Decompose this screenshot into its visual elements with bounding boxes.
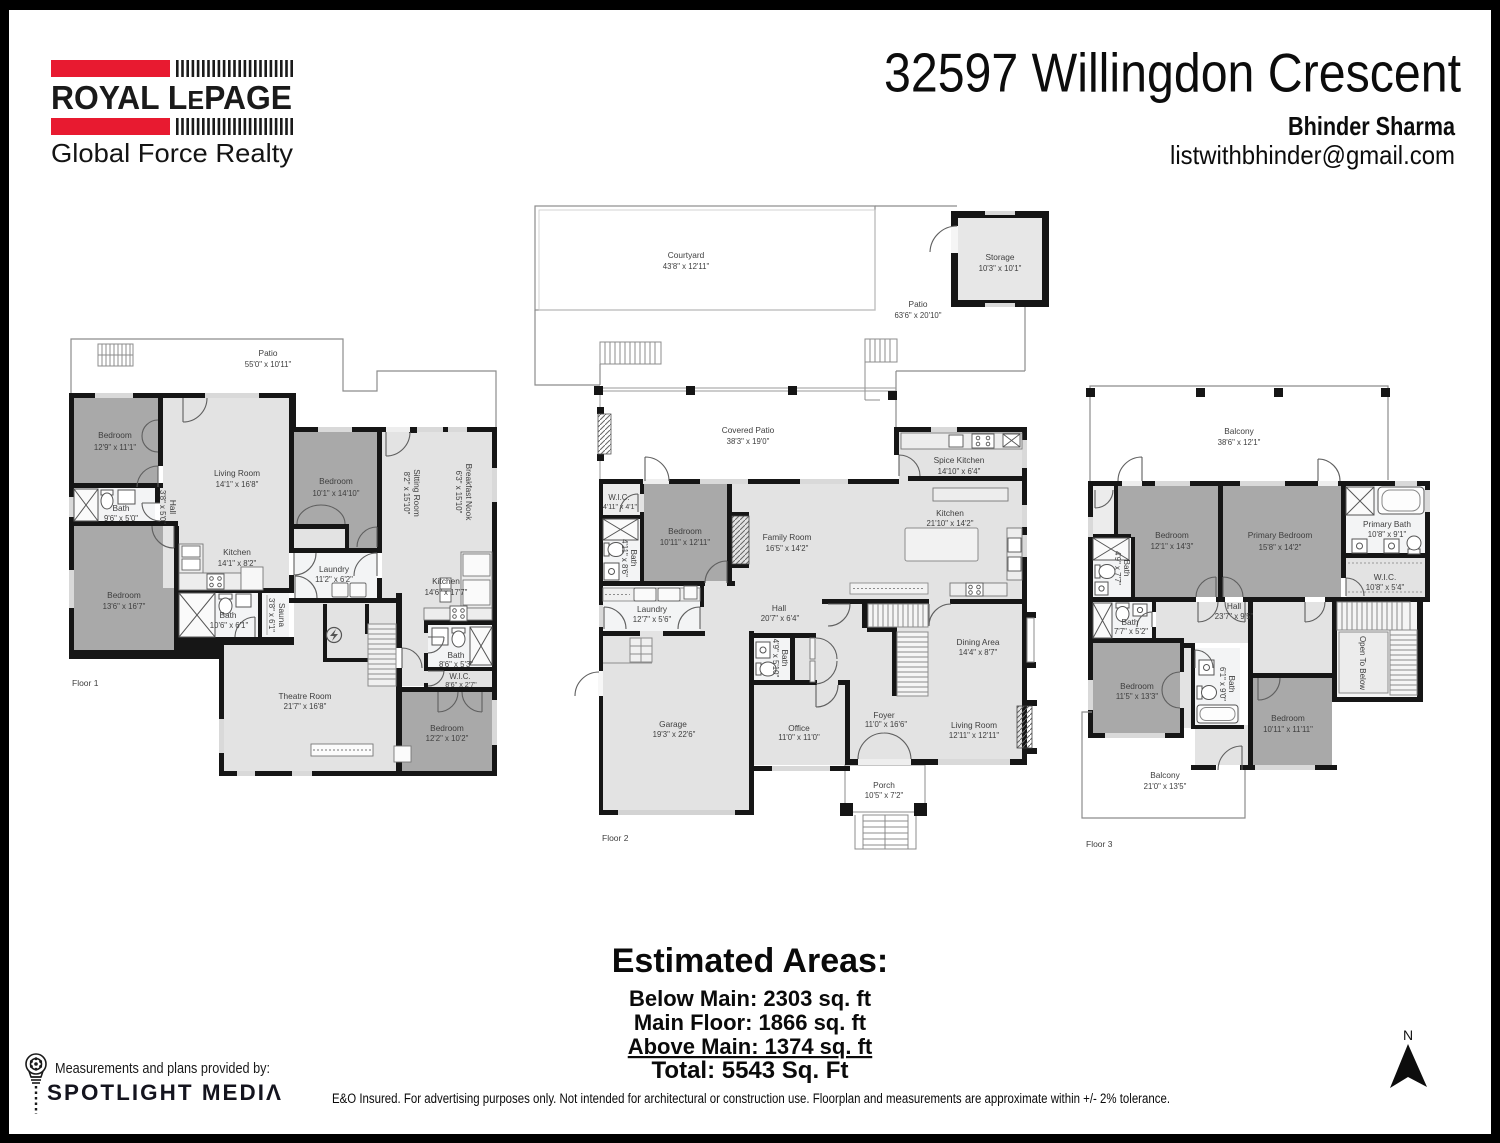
- svg-text:Floor 2: Floor 2: [602, 833, 629, 843]
- svg-text:Bath: Bath: [1122, 559, 1132, 576]
- svg-text:6'1" x 9'0": 6'1" x 9'0": [1218, 667, 1227, 701]
- svg-text:Bath: Bath: [447, 650, 464, 660]
- svg-text:E&O Insured. For advertising p: E&O Insured. For advertising purposes on…: [332, 1091, 1170, 1106]
- svg-text:8'2" x 15'10": 8'2" x 15'10": [402, 472, 411, 515]
- svg-text:Bath: Bath: [629, 549, 639, 566]
- svg-text:Laundry: Laundry: [637, 604, 668, 614]
- svg-text:10'11" x 12'11": 10'11" x 12'11": [660, 538, 711, 547]
- svg-text:11'0" x 11'0": 11'0" x 11'0": [778, 733, 820, 742]
- svg-text:Kitchen: Kitchen: [936, 508, 964, 518]
- svg-text:Floor 3: Floor 3: [1086, 839, 1113, 849]
- svg-text:10'1" x 14'10": 10'1" x 14'10": [312, 489, 359, 498]
- svg-text:Floor 1: Floor 1: [72, 678, 99, 688]
- svg-text:15'8" x 14'2": 15'8" x 14'2": [1259, 543, 1302, 552]
- svg-text:Spice Kitchen: Spice Kitchen: [934, 455, 985, 465]
- svg-text:10'3" x 10'1": 10'3" x 10'1": [979, 264, 1022, 273]
- svg-text:Sitting Room: Sitting Room: [412, 469, 422, 517]
- svg-text:Below Main: 2303 sq. ft: Below Main: 2303 sq. ft: [629, 986, 872, 1011]
- svg-text:Bath: Bath: [112, 503, 129, 513]
- svg-text:21'7" x 16'8": 21'7" x 16'8": [284, 702, 327, 711]
- svg-text:14'1" x 16'8": 14'1" x 16'8": [216, 480, 259, 489]
- svg-text:Patio: Patio: [909, 299, 928, 309]
- svg-text:12'11" x 12'11": 12'11" x 12'11": [949, 731, 1000, 740]
- svg-text:Bedroom: Bedroom: [319, 476, 353, 486]
- svg-text:14'6" x 17'7": 14'6" x 17'7": [425, 588, 468, 597]
- svg-text:Courtyard: Courtyard: [668, 250, 705, 260]
- svg-text:Total: 5543 Sq. Ft: Total: 5543 Sq. Ft: [652, 1057, 849, 1084]
- svg-text:Bath: Bath: [219, 610, 236, 620]
- svg-text:Hall: Hall: [1227, 601, 1241, 611]
- svg-text:Bedroom: Bedroom: [1155, 530, 1189, 540]
- svg-text:Bath: Bath: [780, 649, 790, 666]
- svg-text:12'2" x 10'2": 12'2" x 10'2": [426, 734, 469, 743]
- svg-text:12'1" x 14'3": 12'1" x 14'3": [1151, 542, 1194, 551]
- svg-text:Porch: Porch: [873, 780, 895, 790]
- svg-text:Bedroom: Bedroom: [1120, 681, 1154, 691]
- svg-text:10'5" x 7'2": 10'5" x 7'2": [865, 791, 904, 800]
- svg-text:N: N: [1403, 1027, 1413, 1043]
- svg-text:Storage: Storage: [985, 252, 1014, 262]
- svg-text:10'8" x 9'1": 10'8" x 9'1": [1368, 530, 1407, 539]
- svg-text:Covered Patio: Covered Patio: [722, 425, 775, 435]
- svg-text:11'5" x 13'3": 11'5" x 13'3": [1116, 692, 1158, 701]
- svg-text:9'6" x 5'0": 9'6" x 5'0": [104, 514, 138, 523]
- svg-text:Bath: Bath: [1121, 617, 1138, 627]
- svg-text:8'6" x 5'3": 8'6" x 5'3": [439, 660, 473, 669]
- svg-text:21'0" x 13'5": 21'0" x 13'5": [1144, 782, 1187, 791]
- svg-text:Estimated Areas:: Estimated Areas:: [612, 942, 889, 980]
- svg-text:14'10" x 6'4": 14'10" x 6'4": [938, 467, 981, 476]
- svg-text:Living Room: Living Room: [951, 720, 997, 730]
- svg-text:20'7" x 6'4": 20'7" x 6'4": [761, 614, 800, 623]
- svg-text:14'1" x 8'2": 14'1" x 8'2": [218, 559, 257, 568]
- svg-text:13'6" x 16'7": 13'6" x 16'7": [103, 602, 146, 611]
- svg-text:Above Main: 1374 sq. ft: Above Main: 1374 sq. ft: [628, 1034, 873, 1059]
- svg-text:Global Force Realty: Global Force Realty: [51, 138, 293, 168]
- svg-text:Bath: Bath: [1227, 675, 1237, 692]
- svg-text:Primary Bedroom: Primary Bedroom: [1248, 530, 1313, 540]
- svg-text:Breakfast Nook: Breakfast Nook: [464, 464, 474, 522]
- svg-text:23'7" x 9'5": 23'7" x 9'5": [1215, 612, 1254, 621]
- svg-text:11'2" x 6'2": 11'2" x 6'2": [315, 575, 353, 584]
- svg-text:Bedroom: Bedroom: [98, 430, 132, 440]
- svg-text:Bedroom: Bedroom: [1271, 713, 1305, 723]
- svg-text:Bhinder Sharma: Bhinder Sharma: [1288, 111, 1455, 141]
- svg-text:Office: Office: [788, 723, 810, 733]
- svg-text:43'8" x 12'11": 43'8" x 12'11": [663, 262, 710, 271]
- svg-text:Dining Area: Dining Area: [957, 637, 1000, 647]
- svg-text:12'7" x 5'6": 12'7" x 5'6": [633, 615, 672, 624]
- svg-text:7'7" x 5'2": 7'7" x 5'2": [1114, 627, 1148, 636]
- svg-text:Measurements and plans provide: Measurements and plans provided by:: [55, 1060, 270, 1077]
- svg-text:3'8" x 6'1": 3'8" x 6'1": [267, 598, 276, 632]
- svg-text:ROYAL LEPAGE: ROYAL LEPAGE: [51, 79, 292, 116]
- svg-text:Kitchen: Kitchen: [223, 547, 251, 557]
- svg-text:Bedroom: Bedroom: [430, 723, 464, 733]
- svg-text:10'6" x 6'1": 10'6" x 6'1": [210, 621, 249, 630]
- svg-text:Balcony: Balcony: [1224, 426, 1254, 436]
- svg-text:63'6" x 20'10": 63'6" x 20'10": [894, 311, 941, 320]
- svg-text:6'3" x 15'10": 6'3" x 15'10": [454, 471, 463, 514]
- svg-text:10'11" x 11'11": 10'11" x 11'11": [1263, 725, 1313, 734]
- svg-text:W.I.C.: W.I.C.: [1374, 572, 1397, 582]
- svg-text:11'0" x 16'6": 11'0" x 16'6": [865, 720, 907, 729]
- svg-text:21'10" x 14'2": 21'10" x 14'2": [926, 519, 973, 528]
- svg-text:Garage: Garage: [659, 719, 687, 729]
- svg-text:4'9" x 7'7": 4'9" x 7'7": [1113, 551, 1122, 585]
- svg-text:Family Room: Family Room: [763, 532, 812, 542]
- svg-text:55'0" x 10'11": 55'0" x 10'11": [245, 360, 292, 369]
- svg-text:12'9" x 11'1": 12'9" x 11'1": [94, 443, 136, 452]
- svg-text:Theatre Room: Theatre Room: [278, 691, 331, 701]
- svg-text:Hall: Hall: [772, 603, 786, 613]
- svg-text:Balcony: Balcony: [1150, 770, 1180, 780]
- svg-text:Foyer: Foyer: [873, 710, 894, 720]
- svg-text:listwithbhinder@gmail.com: listwithbhinder@gmail.com: [1170, 140, 1455, 170]
- svg-text:Bedroom: Bedroom: [107, 590, 141, 600]
- svg-text:Open To Below: Open To Below: [1358, 636, 1367, 690]
- svg-text:Living Room: Living Room: [214, 468, 260, 478]
- svg-text:Primary Bath: Primary Bath: [1363, 519, 1411, 529]
- svg-text:3'8" x 5'0": 3'8" x 5'0": [158, 490, 167, 524]
- svg-text:32597 Willingdon Crescent: 32597 Willingdon Crescent: [884, 42, 1461, 104]
- svg-text:SPOTLIGHT MEDIΛ: SPOTLIGHT MEDIΛ: [47, 1080, 283, 1105]
- svg-text:10'8" x 5'4": 10'8" x 5'4": [1366, 583, 1405, 592]
- svg-text:Kitchen: Kitchen: [432, 576, 460, 586]
- svg-text:Hall: Hall: [168, 500, 178, 514]
- svg-text:38'3" x 19'0": 38'3" x 19'0": [727, 437, 770, 446]
- svg-text:38'6" x 12'1": 38'6" x 12'1": [1218, 438, 1261, 447]
- svg-text:Patio: Patio: [259, 348, 278, 358]
- svg-text:19'3" x 22'6": 19'3" x 22'6": [653, 730, 696, 739]
- svg-text:8'6" x 2'7": 8'6" x 2'7": [445, 680, 477, 689]
- svg-text:14'4" x 8'7": 14'4" x 8'7": [959, 648, 998, 657]
- svg-text:16'5" x 14'2": 16'5" x 14'2": [766, 544, 809, 553]
- svg-text:Main Floor: 1866 sq. ft: Main Floor: 1866 sq. ft: [634, 1010, 867, 1035]
- svg-text:4'9" x 5'10": 4'9" x 5'10": [771, 639, 780, 678]
- svg-text:Sauna: Sauna: [277, 603, 287, 627]
- svg-text:Bedroom: Bedroom: [668, 526, 702, 536]
- svg-text:4'11" x 4'1": 4'11" x 4'1": [603, 504, 637, 511]
- svg-text:W.I.C.: W.I.C.: [608, 493, 629, 502]
- svg-text:Laundry: Laundry: [319, 564, 350, 574]
- svg-text:4'11" x 8'6": 4'11" x 8'6": [620, 539, 629, 577]
